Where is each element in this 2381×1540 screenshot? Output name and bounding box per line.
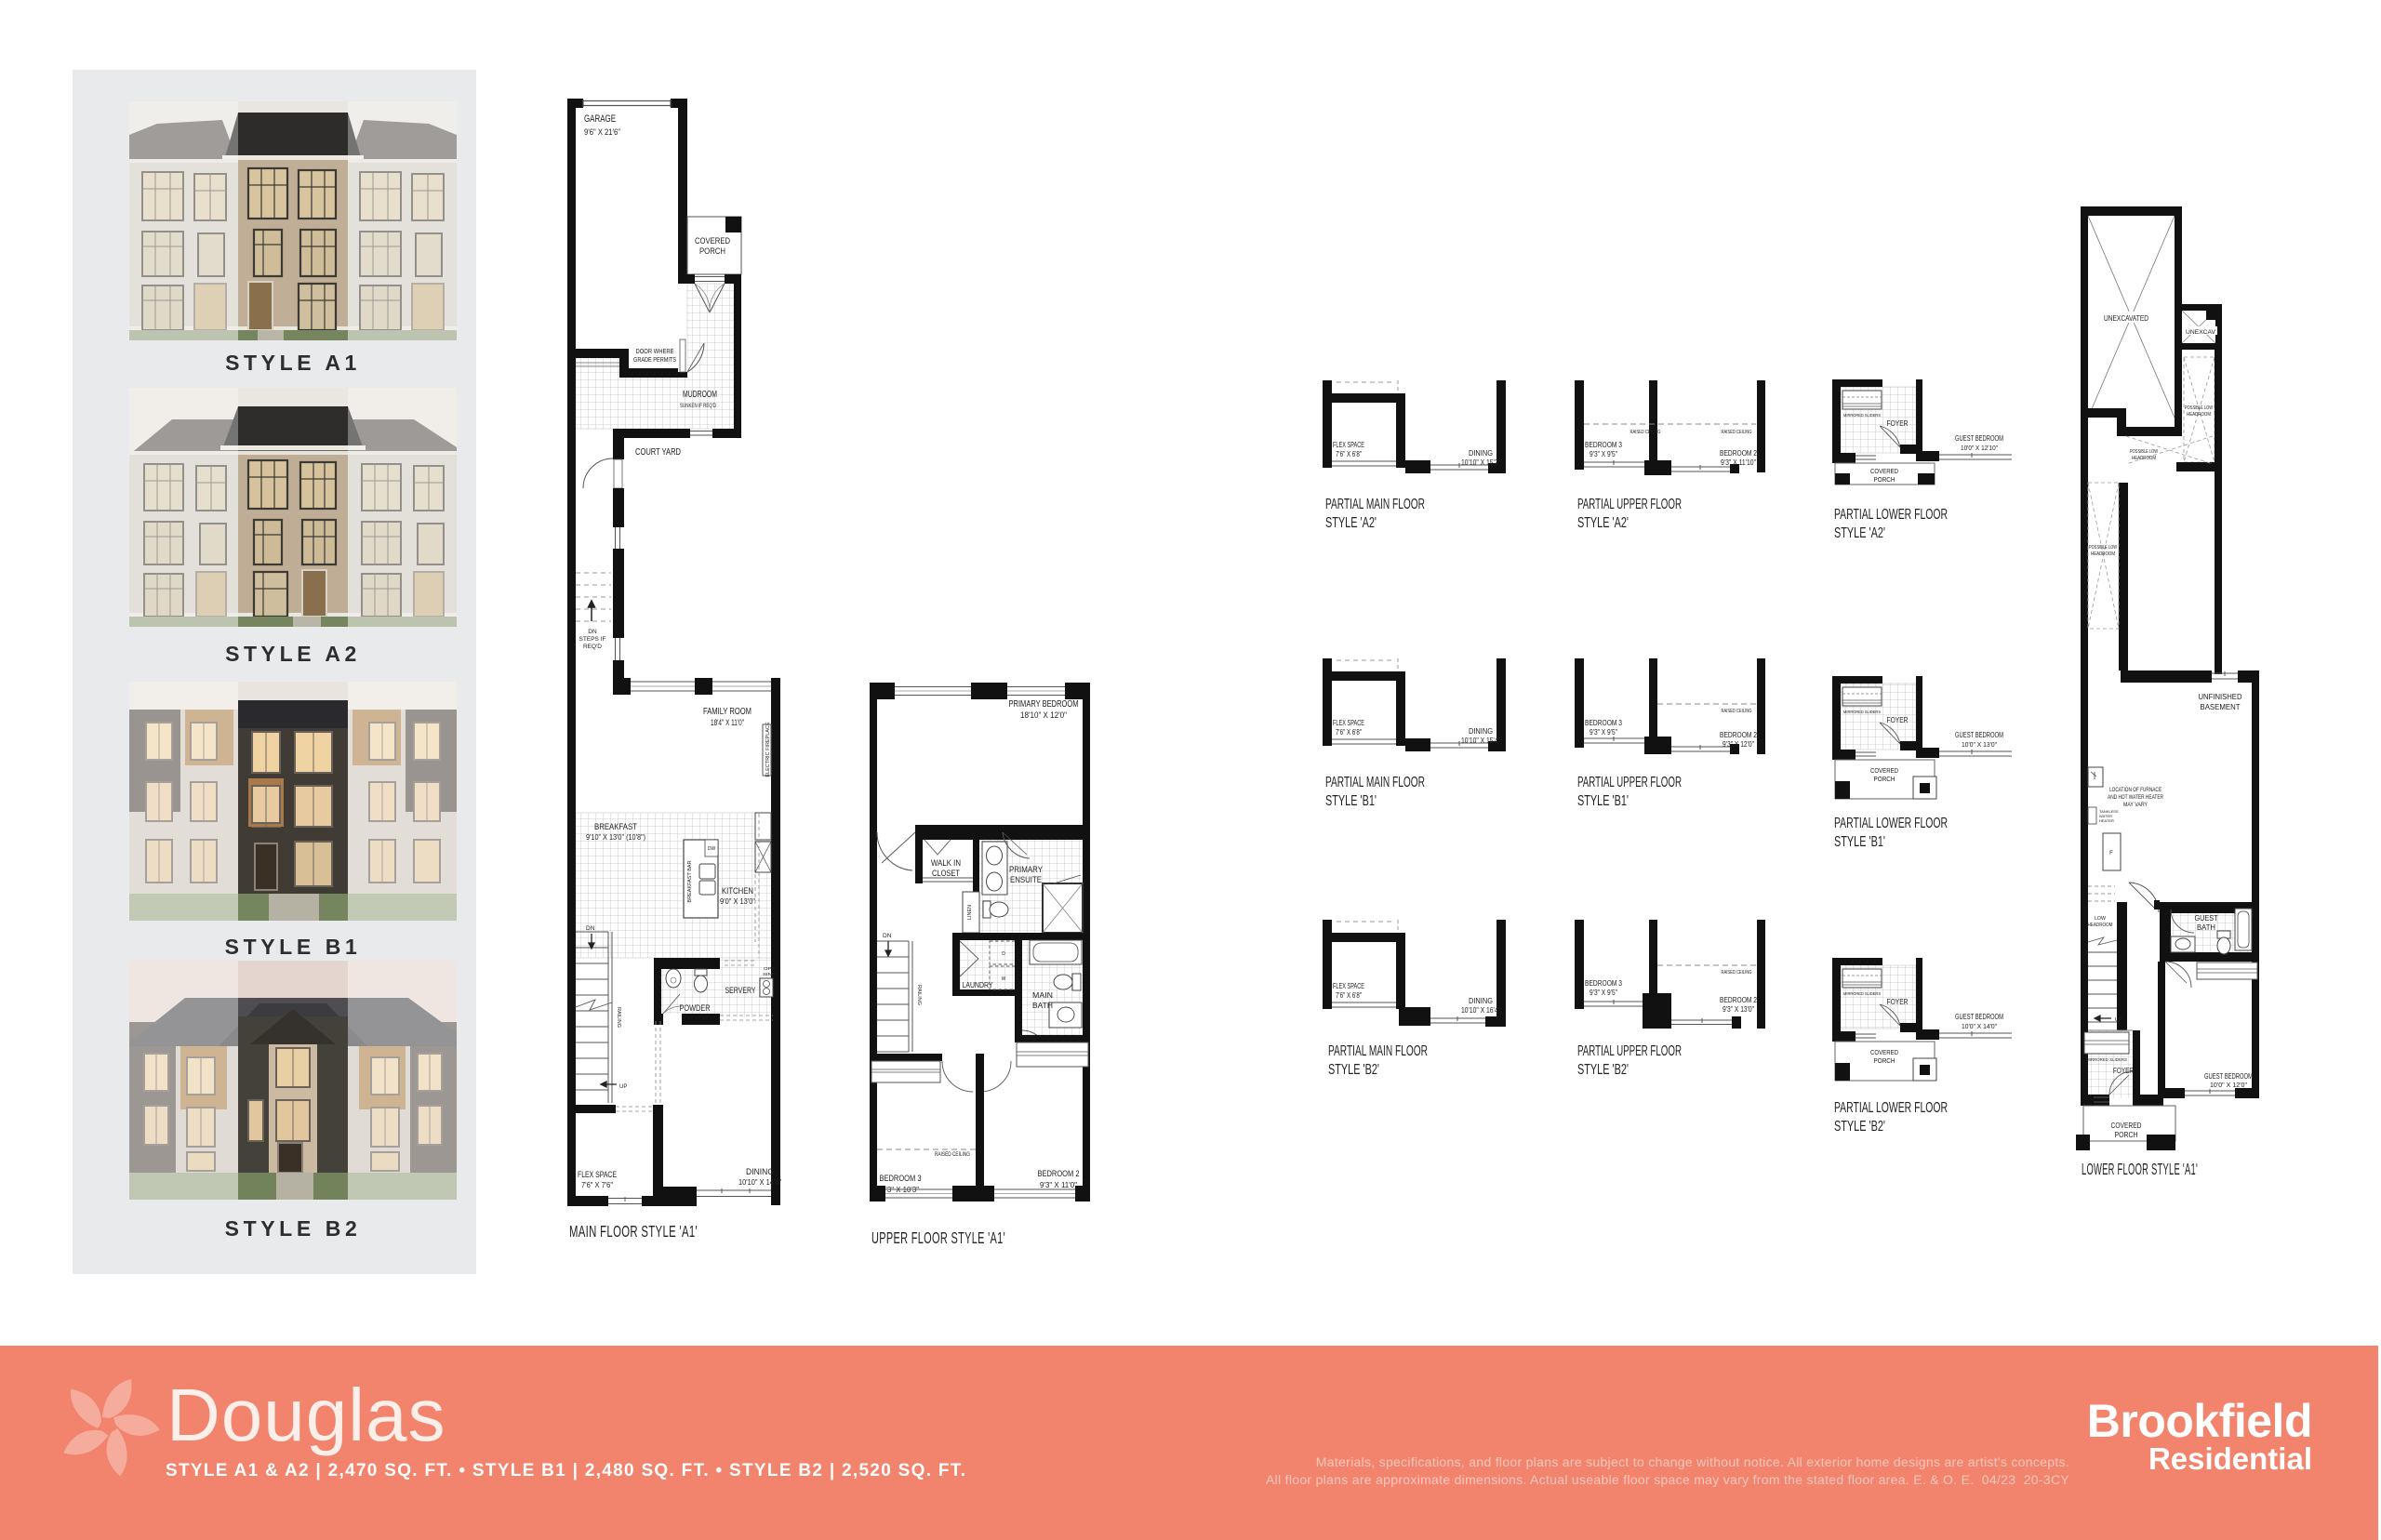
svg-text:9'3" X 11'10": 9'3" X 11'10" xyxy=(1721,458,1756,467)
svg-text:PARTIAL MAIN FLOOR: PARTIAL MAIN FLOOR xyxy=(1325,497,1425,512)
svg-text:SERVERY: SERVERY xyxy=(725,986,756,995)
svg-text:MIRRORED SLIDERS: MIRRORED SLIDERS xyxy=(2086,1057,2127,1062)
svg-text:RAISED CEILING: RAISED CEILING xyxy=(935,1151,970,1158)
svg-text:BEDROOM 3: BEDROOM 3 xyxy=(1585,718,1622,727)
svg-text:DN: DN xyxy=(883,933,892,939)
svg-text:WALK IN: WALK IN xyxy=(931,858,961,868)
svg-text:9'10" X 13'0" (10'8"): 9'10" X 13'0" (10'8") xyxy=(586,833,645,842)
svg-text:PORCH: PORCH xyxy=(699,246,725,256)
svg-text:FOYER: FOYER xyxy=(1887,716,1909,724)
svg-text:COVERED: COVERED xyxy=(2111,1122,2142,1130)
svg-text:AND HOT WATER HEATER: AND HOT WATER HEATER xyxy=(2108,794,2163,801)
svg-text:COVERED: COVERED xyxy=(1870,768,1898,775)
svg-text:COVERED: COVERED xyxy=(1870,469,1898,475)
svg-text:BATH: BATH xyxy=(1032,1001,1053,1010)
svg-text:10'10" X 15'2": 10'10" X 15'2" xyxy=(1461,458,1500,467)
svg-text:DN: DN xyxy=(588,629,597,635)
svg-text:RAISED CEILING: RAISED CEILING xyxy=(1722,430,1752,435)
svg-text:10'10" X 15'4": 10'10" X 15'4" xyxy=(1461,737,1500,745)
svg-text:DINING: DINING xyxy=(1469,996,1493,1005)
svg-text:MAIN: MAIN xyxy=(1032,990,1053,1000)
svg-text:FLEX SPACE: FLEX SPACE xyxy=(1333,981,1364,990)
svg-text:POSSIBLE LOW: POSSIBLE LOW xyxy=(2130,449,2159,455)
svg-text:9'0" X 13'0": 9'0" X 13'0" xyxy=(720,897,755,906)
svg-text:PARTIAL UPPER FLOOR: PARTIAL UPPER FLOOR xyxy=(1577,775,1682,790)
svg-text:PARTIAL LOWER FLOOR: PARTIAL LOWER FLOOR xyxy=(1834,507,1948,523)
svg-text:GUEST: GUEST xyxy=(2195,914,2218,923)
svg-text:HEADROOM: HEADROOM xyxy=(2132,456,2156,461)
svg-text:FOYER: FOYER xyxy=(1887,998,1909,1006)
svg-text:STYLE 'A2': STYLE 'A2' xyxy=(1834,525,1885,541)
svg-text:GRADE PERMITS: GRADE PERMITS xyxy=(633,357,676,364)
svg-text:9'3" X 9'5": 9'3" X 9'5" xyxy=(1590,989,1617,997)
svg-text:PARTIAL UPPER FLOOR: PARTIAL UPPER FLOOR xyxy=(1577,1043,1682,1059)
svg-text:UP: UP xyxy=(2115,1017,2122,1023)
svg-text:LOW: LOW xyxy=(2095,916,2107,922)
svg-text:BEDROOM 3: BEDROOM 3 xyxy=(880,1174,922,1184)
svg-text:STYLE 'B1': STYLE 'B1' xyxy=(1834,834,1885,850)
svg-text:BEDROOM 3: BEDROOM 3 xyxy=(1585,440,1622,449)
svg-text:9'3" X 13'0": 9'3" X 13'0" xyxy=(1723,1005,1754,1014)
svg-text:HEADROOM: HEADROOM xyxy=(2187,412,2211,418)
svg-text:MIRRORED SLIDERS: MIRRORED SLIDERS xyxy=(1843,991,1881,996)
svg-text:BATH: BATH xyxy=(2197,923,2215,932)
svg-text:FLEX SPACE: FLEX SPACE xyxy=(578,1170,617,1180)
svg-text:BEDROOM 2: BEDROOM 2 xyxy=(1038,1169,1080,1179)
svg-text:STYLE 'A2': STYLE 'A2' xyxy=(1577,515,1629,531)
svg-text:STYLE 'B2': STYLE 'B2' xyxy=(1328,1062,1379,1078)
svg-text:DW: DW xyxy=(708,846,716,852)
svg-text:LAUNDRY: LAUNDRY xyxy=(963,980,993,989)
svg-text:7'6" X 6'8": 7'6" X 6'8" xyxy=(1336,728,1362,737)
svg-text:10'0" X 13'0": 10'0" X 13'0" xyxy=(1962,740,1997,749)
svg-text:PRIMARY BEDROOM: PRIMARY BEDROOM xyxy=(1009,699,1079,710)
svg-text:COVERED: COVERED xyxy=(695,236,730,246)
svg-text:UNFINISHED: UNFINISHED xyxy=(2199,692,2242,701)
svg-text:PORCH: PORCH xyxy=(1874,1058,1895,1065)
svg-text:W: W xyxy=(1002,976,1006,982)
svg-text:RAISED CEILING: RAISED CEILING xyxy=(1722,970,1752,976)
svg-text:BEDROOM 2: BEDROOM 2 xyxy=(1720,730,1757,739)
svg-text:LOWER FLOOR STYLE 'A1': LOWER FLOOR STYLE 'A1' xyxy=(2082,1160,2198,1178)
svg-text:MAY VARY: MAY VARY xyxy=(2123,802,2148,808)
svg-text:GUEST BEDROOM: GUEST BEDROOM xyxy=(1955,731,2003,739)
svg-text:POSSIBLE LOW: POSSIBLE LOW xyxy=(2089,545,2118,551)
svg-text:DINING: DINING xyxy=(746,1167,774,1177)
svg-text:MAIN FLOOR STYLE 'A1': MAIN FLOOR STYLE 'A1' xyxy=(569,1222,698,1241)
svg-text:STYLE 'B2': STYLE 'B2' xyxy=(1577,1062,1629,1078)
svg-text:PARTIAL LOWER FLOOR: PARTIAL LOWER FLOOR xyxy=(1834,816,1948,831)
svg-text:FLEX SPACE: FLEX SPACE xyxy=(1333,440,1364,449)
svg-text:BREAKFAST BAR: BREAKFAST BAR xyxy=(687,860,693,902)
svg-text:UPPER FLOOR STYLE 'A1': UPPER FLOOR STYLE 'A1' xyxy=(871,1228,1005,1247)
svg-text:7'6" X 6'8": 7'6" X 6'8" xyxy=(1336,991,1362,1000)
svg-text:PRIMARY: PRIMARY xyxy=(1009,865,1043,874)
svg-text:9'3" X 12'0": 9'3" X 12'0" xyxy=(1723,740,1754,749)
svg-text:STYLE 'A2': STYLE 'A2' xyxy=(1325,515,1377,531)
svg-text:HEADROOM: HEADROOM xyxy=(2091,551,2115,557)
svg-text:BASEMENT: BASEMENT xyxy=(2201,702,2241,711)
svg-text:UNEXCAVATED: UNEXCAVATED xyxy=(2104,314,2148,323)
svg-text:PARTIAL MAIN FLOOR: PARTIAL MAIN FLOOR xyxy=(1325,775,1425,790)
svg-text:COVERED: COVERED xyxy=(1870,1050,1898,1056)
svg-text:SINK: SINK xyxy=(763,972,777,977)
svg-text:BEDROOM 2: BEDROOM 2 xyxy=(1720,448,1757,458)
svg-text:FLEX SPACE: FLEX SPACE xyxy=(1333,718,1364,727)
svg-text:GUEST BEDROOM: GUEST BEDROOM xyxy=(2204,1072,2253,1081)
svg-text:STYLE 'B1': STYLE 'B1' xyxy=(1577,793,1629,809)
svg-text:FOYER: FOYER xyxy=(2113,1067,2134,1075)
svg-text:9'6" X 21'6": 9'6" X 21'6" xyxy=(584,127,620,138)
svg-text:FAMILY ROOM: FAMILY ROOM xyxy=(703,707,752,717)
svg-text:7'6" X 6'8": 7'6" X 6'8" xyxy=(1336,450,1362,458)
svg-text:GARAGE: GARAGE xyxy=(584,113,616,125)
svg-text:10'0" X 14'0": 10'0" X 14'0" xyxy=(1962,1022,1997,1030)
svg-text:POWDER: POWDER xyxy=(680,1003,711,1013)
svg-text:10'0" X 12'0": 10'0" X 12'0" xyxy=(2210,1081,2247,1089)
svg-text:CLOSET: CLOSET xyxy=(932,869,960,878)
svg-text:HEADROOM: HEADROOM xyxy=(2088,923,2113,928)
svg-text:7'6" X 7'6": 7'6" X 7'6" xyxy=(581,1180,613,1189)
svg-text:PORCH: PORCH xyxy=(1874,777,1895,783)
svg-text:RAILING: RAILING xyxy=(916,985,922,1005)
svg-text:GUEST BEDROOM: GUEST BEDROOM xyxy=(1955,1013,2003,1021)
svg-text:DOOR WHERE: DOOR WHERE xyxy=(636,349,674,355)
svg-text:DN: DN xyxy=(586,925,595,932)
svg-text:LOCATION OF FURNACE: LOCATION OF FURNACE xyxy=(2109,787,2162,793)
svg-text:PORCH: PORCH xyxy=(1874,477,1895,484)
svg-text:9'3" X 11'0": 9'3" X 11'0" xyxy=(1040,1180,1077,1189)
svg-text:PARTIAL LOWER FLOOR: PARTIAL LOWER FLOOR xyxy=(1834,1100,1948,1116)
svg-text:UNEXCAV: UNEXCAV xyxy=(2186,329,2216,336)
svg-text:RAISED CEILING: RAISED CEILING xyxy=(1722,709,1752,714)
svg-text:RAILING: RAILING xyxy=(616,1007,621,1028)
svg-text:MIRRORED SLIDERS: MIRRORED SLIDERS xyxy=(1843,413,1881,418)
svg-text:10'10" X 16'4": 10'10" X 16'4" xyxy=(1461,1006,1500,1015)
svg-text:MIRRORED SLIDERS: MIRRORED SLIDERS xyxy=(1843,710,1881,714)
svg-text:MUDROOM: MUDROOM xyxy=(683,390,717,400)
svg-text:ELECTRIC FIREPLACE: ELECTRIC FIREPLACE xyxy=(765,722,771,777)
svg-text:POSSIBLE LOW: POSSIBLE LOW xyxy=(2185,405,2214,411)
svg-text:SUNKEN IF REQ'D: SUNKEN IF REQ'D xyxy=(680,403,716,409)
svg-text:STYLE 'B1': STYLE 'B1' xyxy=(1325,793,1377,809)
svg-text:ENSUITE: ENSUITE xyxy=(1010,875,1042,884)
svg-text:UP: UP xyxy=(619,1084,627,1090)
svg-text:18'10" X 12'0": 18'10" X 12'0" xyxy=(1020,710,1067,720)
svg-text:10'10" X 14'4": 10'10" X 14'4" xyxy=(738,1177,781,1187)
svg-text:LINEN: LINEN xyxy=(967,905,973,920)
svg-text:COURT YARD: COURT YARD xyxy=(635,447,681,458)
svg-text:BEDROOM 3: BEDROOM 3 xyxy=(1585,978,1622,988)
svg-text:9'3" X 9'5": 9'3" X 9'5" xyxy=(1590,728,1617,737)
svg-text:PORCH: PORCH xyxy=(2115,1131,2138,1139)
svg-text:18'4" X 11'0": 18'4" X 11'0" xyxy=(711,718,744,727)
svg-text:9'3" X 9'5": 9'3" X 9'5" xyxy=(1590,450,1617,458)
svg-text:OPT: OPT xyxy=(764,966,775,972)
svg-text:PARTIAL MAIN FLOOR: PARTIAL MAIN FLOOR xyxy=(1328,1043,1428,1059)
svg-text:PARTIAL UPPER FLOOR: PARTIAL UPPER FLOOR xyxy=(1577,497,1682,512)
svg-text:10'0" X 12'10": 10'0" X 12'10" xyxy=(1961,444,1998,452)
svg-text:FOYER: FOYER xyxy=(1887,419,1909,428)
svg-text:KITCHEN: KITCHEN xyxy=(722,886,753,896)
svg-text:F: F xyxy=(2109,851,2113,856)
svg-text:DINING: DINING xyxy=(1469,726,1493,736)
svg-text:RAISED CEILING: RAISED CEILING xyxy=(1630,430,1661,435)
svg-text:D: D xyxy=(1002,951,1005,957)
svg-text:REQ'D: REQ'D xyxy=(583,644,602,650)
svg-text:STEPS IF: STEPS IF xyxy=(579,636,606,643)
svg-text:GUEST BEDROOM: GUEST BEDROOM xyxy=(1955,434,2003,443)
svg-text:HEATER: HEATER xyxy=(2099,818,2114,823)
svg-text:BREAKFAST: BREAKFAST xyxy=(594,822,637,832)
svg-text:BEDROOM 2: BEDROOM 2 xyxy=(1720,995,1757,1004)
svg-text:DINING: DINING xyxy=(1469,448,1493,458)
svg-text:STYLE 'B2': STYLE 'B2' xyxy=(1834,1119,1885,1135)
